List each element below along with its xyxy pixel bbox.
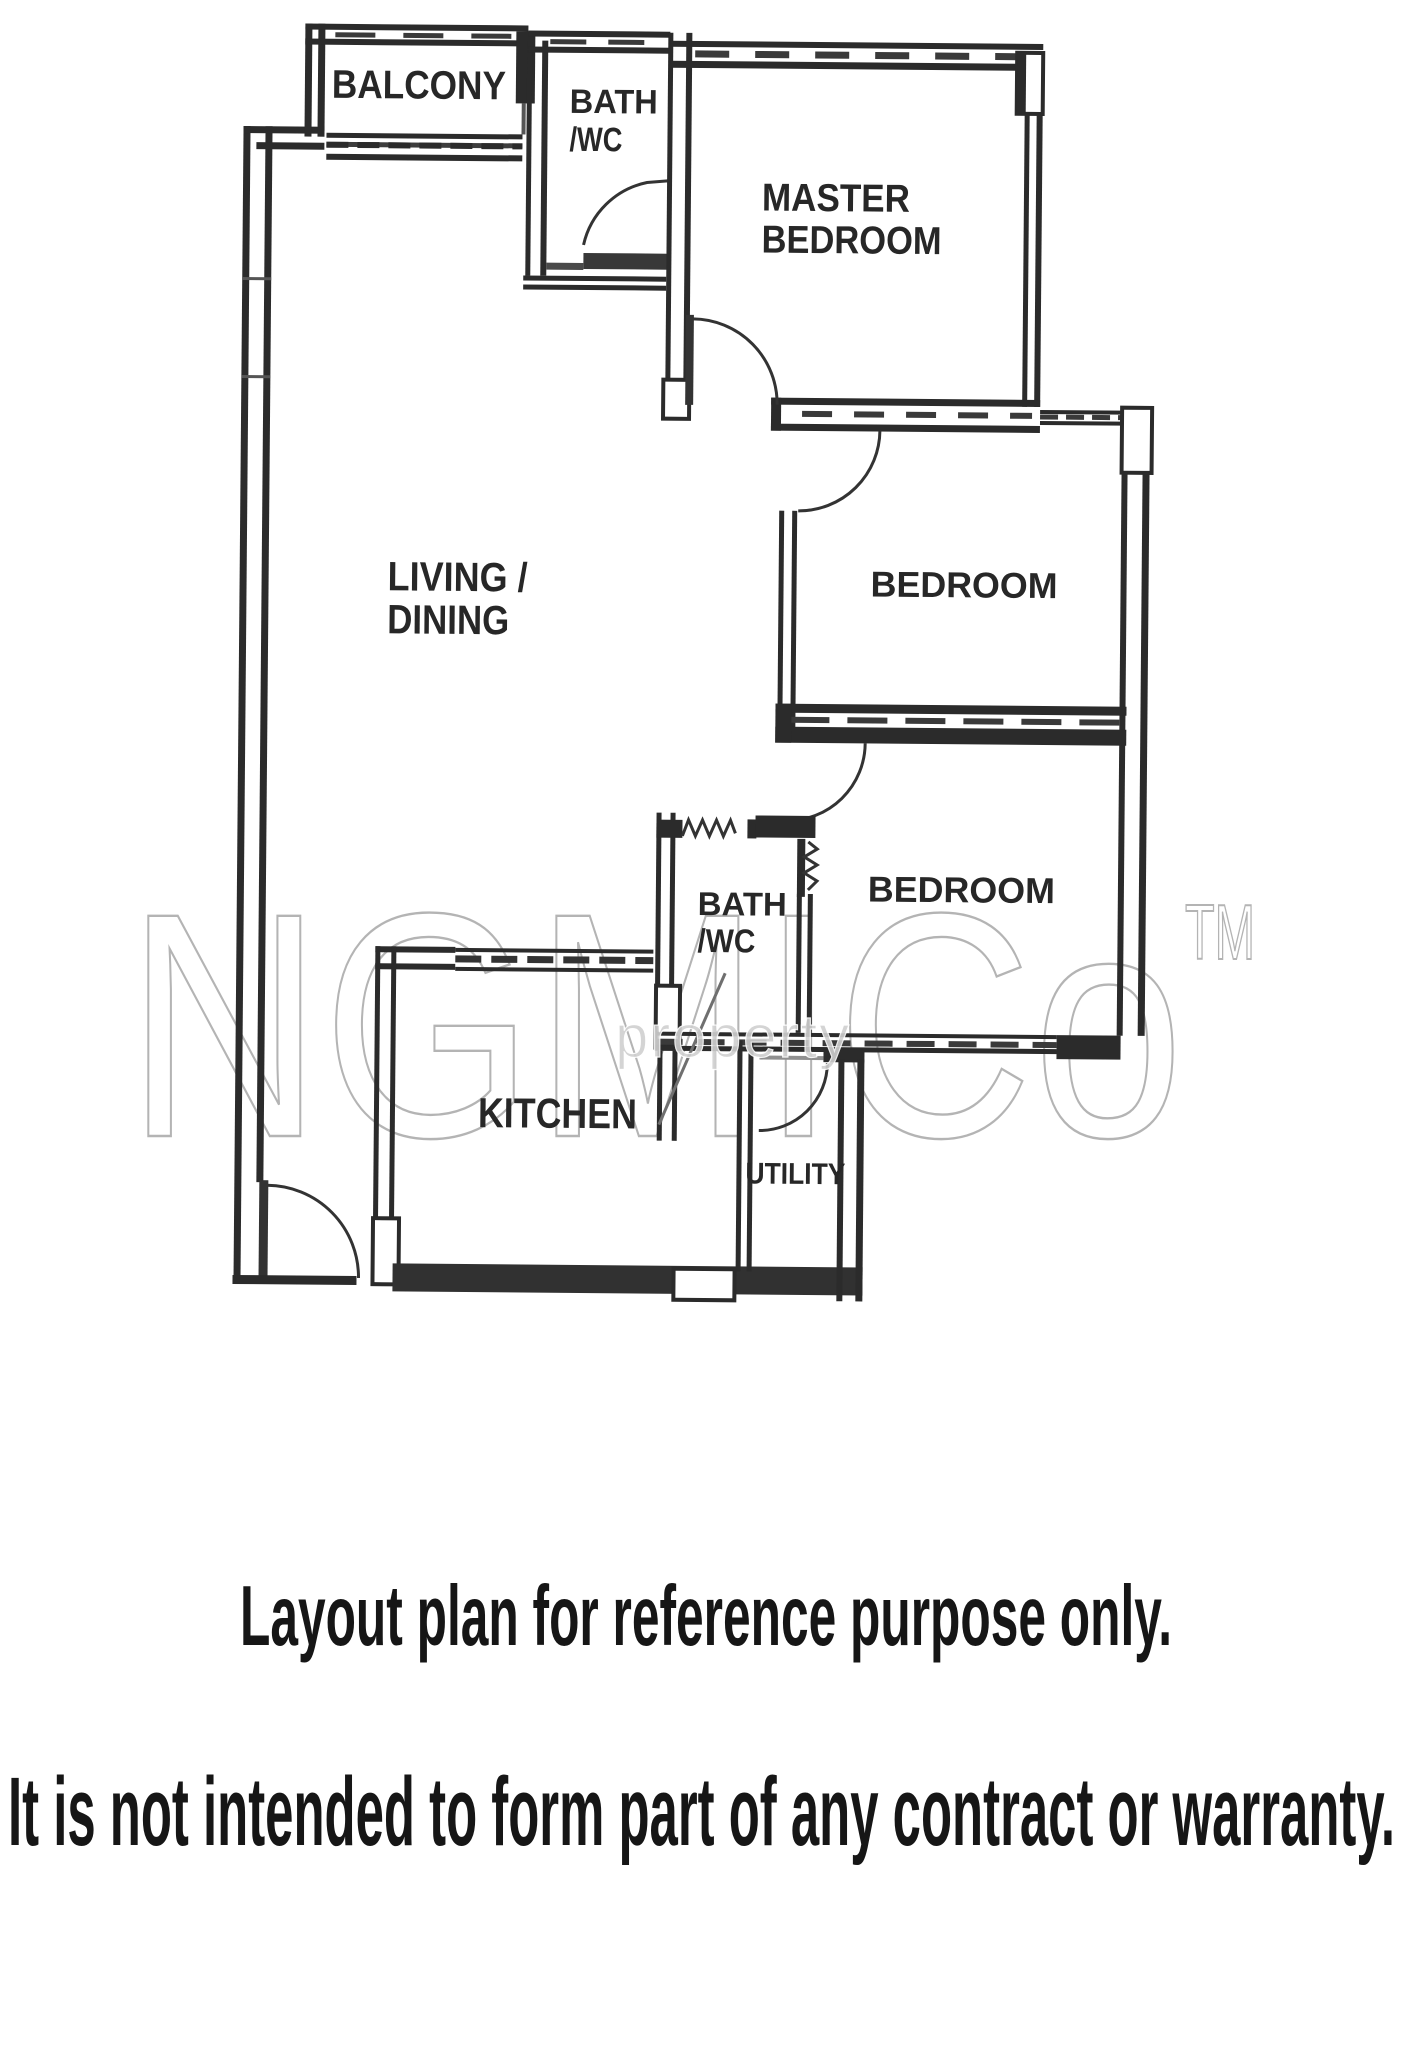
svg-text:BALCONY: BALCONY bbox=[332, 63, 507, 109]
svg-text:KITCHEN: KITCHEN bbox=[478, 1089, 637, 1137]
svg-text:Layout plan for reference purp: Layout plan for reference purpose only. bbox=[240, 1569, 1172, 1664]
svg-text:LIVING /: LIVING / bbox=[387, 553, 527, 600]
svg-text:It is not intended to form par: It is not intended to form part of any c… bbox=[8, 1757, 1395, 1866]
svg-text:UTILITY: UTILITY bbox=[745, 1157, 845, 1191]
svg-text:property: property bbox=[615, 1003, 851, 1070]
svg-text:/WC: /WC bbox=[697, 922, 755, 960]
svg-text:BATH: BATH bbox=[698, 885, 787, 923]
svg-text:BATH: BATH bbox=[570, 83, 658, 122]
svg-text:BEDROOM: BEDROOM bbox=[868, 868, 1055, 911]
svg-text:/WC: /WC bbox=[569, 121, 622, 159]
svg-text:DINING: DINING bbox=[387, 596, 509, 643]
svg-text:MASTER: MASTER bbox=[762, 177, 910, 221]
svg-text:BEDROOM: BEDROOM bbox=[870, 563, 1057, 606]
svg-text:BEDROOM: BEDROOM bbox=[761, 219, 941, 264]
svg-text:TM: TM bbox=[1185, 888, 1255, 976]
